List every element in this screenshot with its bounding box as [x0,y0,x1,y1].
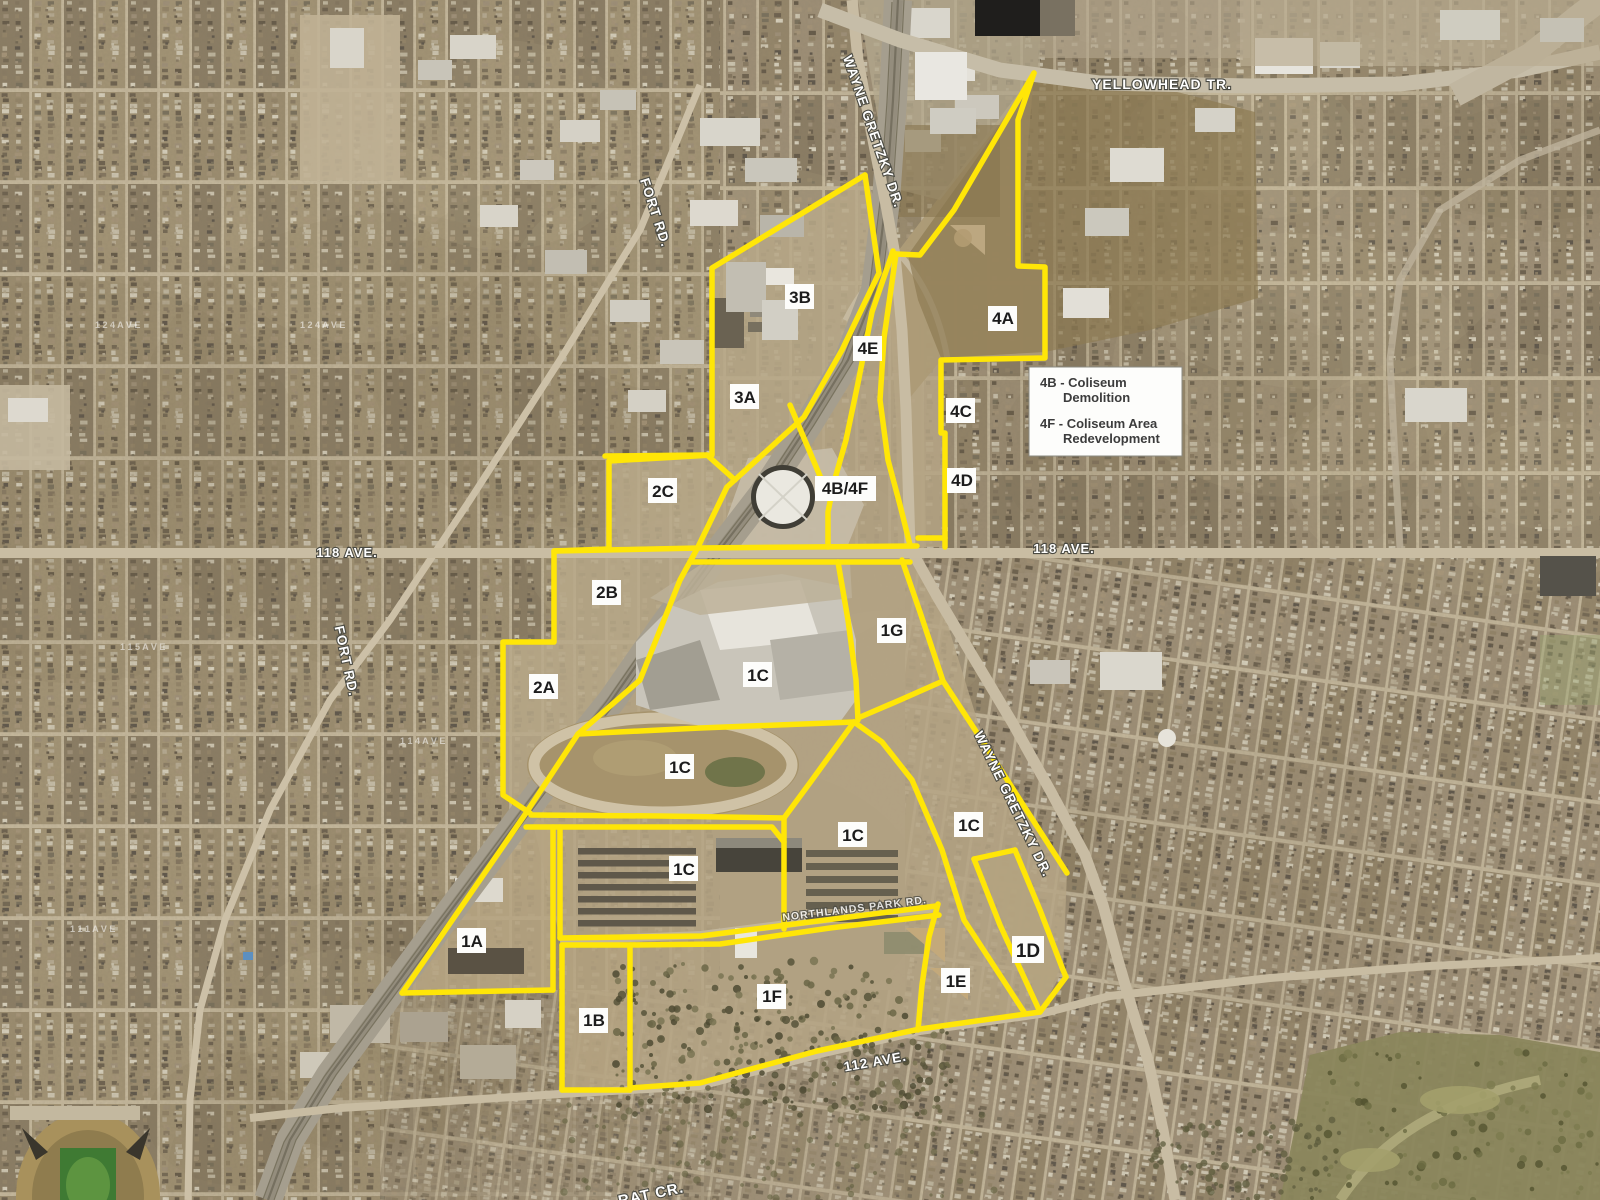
svg-text:1 2 4 A V E: 1 2 4 A V E [95,320,140,330]
svg-text:Redevelopment: Redevelopment [1063,431,1160,446]
svg-text:1C: 1C [842,826,864,845]
svg-text:118 AVE.: 118 AVE. [1033,541,1094,556]
svg-text:1A: 1A [461,932,483,951]
svg-text:4A: 4A [992,309,1014,328]
svg-text:1C: 1C [673,860,695,879]
svg-text:1G: 1G [881,621,904,640]
svg-text:1C: 1C [747,666,769,685]
svg-text:Demolition: Demolition [1063,390,1130,405]
svg-text:1B: 1B [583,1011,605,1030]
svg-text:1D: 1D [1016,941,1040,962]
svg-text:2C: 2C [652,482,674,501]
svg-text:2B: 2B [596,583,618,602]
svg-text:3B: 3B [789,288,811,307]
svg-text:3A: 3A [734,388,756,407]
svg-text:1F: 1F [762,987,782,1006]
svg-text:1 1 4 A V E: 1 1 4 A V E [400,736,445,746]
svg-text:118 AVE.: 118 AVE. [316,545,377,560]
svg-text:4E: 4E [858,339,879,358]
svg-text:4B/4F: 4B/4F [822,479,868,498]
svg-text:1C: 1C [669,758,691,777]
svg-text:4D: 4D [951,471,973,490]
svg-text:2A: 2A [533,678,555,697]
svg-text:1E: 1E [946,972,967,991]
svg-text:1 1 5 A V E: 1 1 5 A V E [120,642,165,652]
svg-text:4B - Coliseum: 4B - Coliseum [1040,375,1127,390]
svg-text:1 1 1 A V E: 1 1 1 A V E [70,924,115,934]
svg-text:1 2 4 A V E: 1 2 4 A V E [300,320,345,330]
svg-text:YELLOWHEAD TR.: YELLOWHEAD TR. [1092,76,1232,92]
svg-text:4C: 4C [950,402,972,421]
svg-text:4F - Coliseum Area: 4F - Coliseum Area [1040,416,1158,431]
svg-text:1C: 1C [958,816,980,835]
